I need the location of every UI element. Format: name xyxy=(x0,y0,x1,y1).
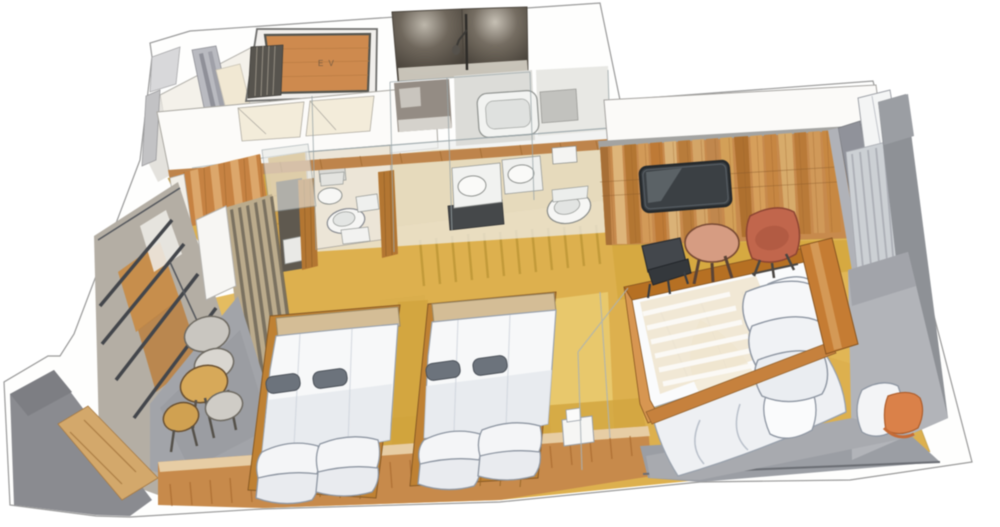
svg-text:E V: E V xyxy=(318,59,335,68)
